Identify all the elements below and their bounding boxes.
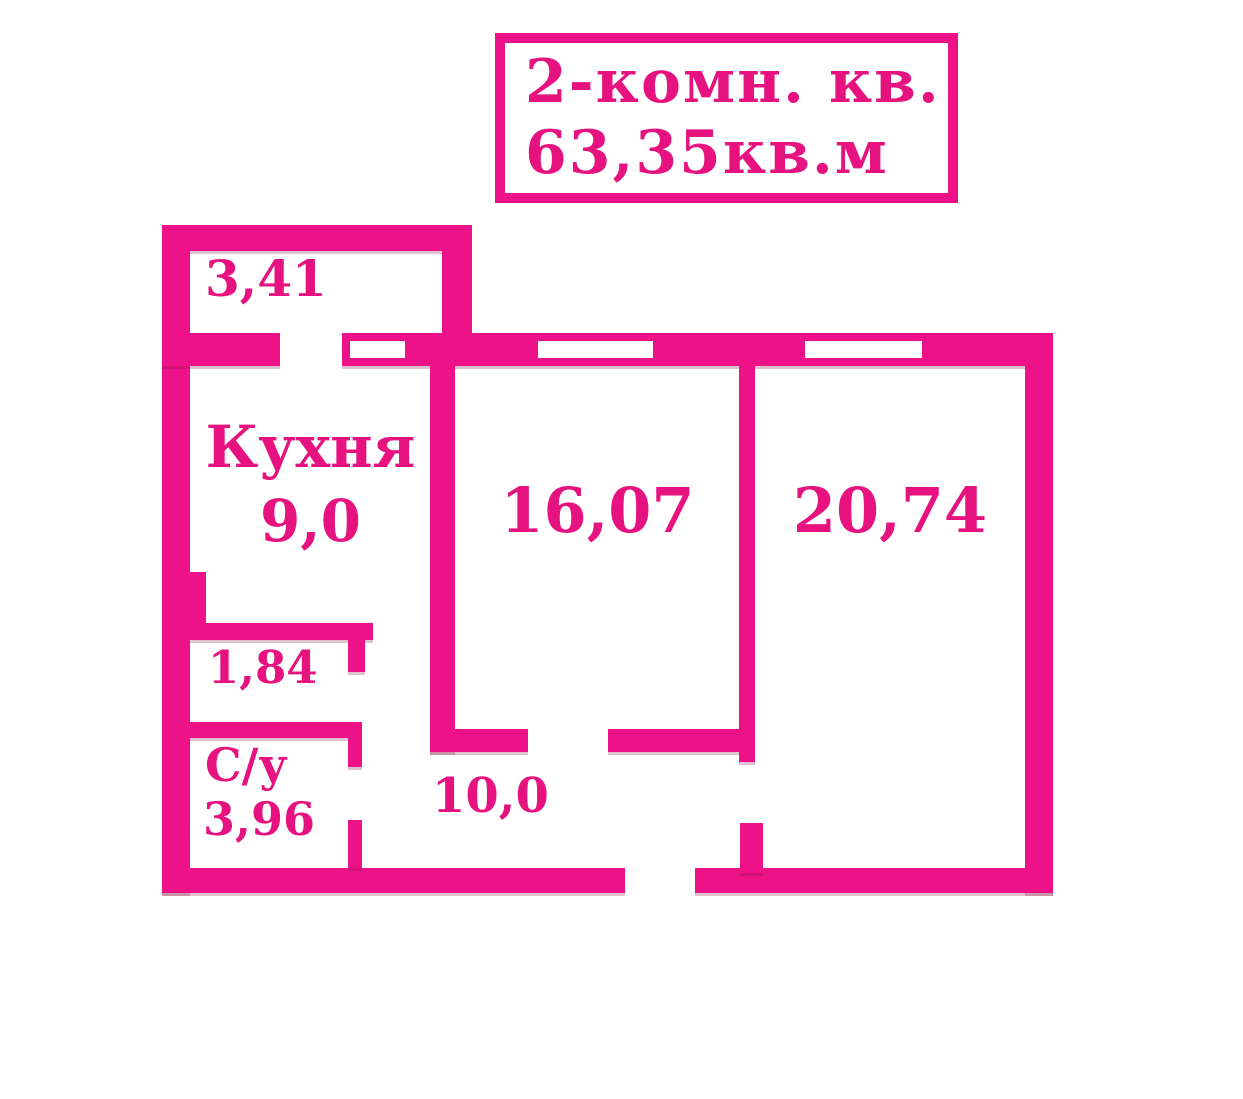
wall-outer-right [1025,335,1053,893]
wall-divider-living-bedroom [739,355,755,762]
bathroom-name-label: С/у [205,742,288,788]
wall-bathroom-right-lower [348,820,362,868]
window-kitchen-balcony [350,341,405,358]
wall-divider-kitchen-living [430,355,455,752]
window-living-room [538,341,653,358]
living-room-area-label: 16,07 [455,480,740,542]
hallway-area-label: 10,0 [432,772,549,820]
wall-living-bottom-left [430,729,528,752]
bathroom-area-label: 3,96 [203,796,315,842]
wall-living-bottom-right [608,729,755,752]
wall-outer-left [162,225,190,893]
wall-bathroom-right-upper [348,722,362,767]
wall-left-pier [190,572,206,627]
title-line-1: 2-комн. кв. [525,47,948,118]
wall-bathroom-top [190,722,358,738]
window-bedroom [805,341,922,358]
bedroom-area-label: 20,74 [755,480,1025,542]
title-line-2: 63,35кв.м [525,118,948,189]
kitchen-name-label: Кухня [188,418,433,476]
wall-hallway-bedroom-stub [740,823,763,873]
balcony-area-label: 3,41 [205,254,327,304]
wall-bottom-left [162,868,625,893]
kitchen-area-label: 9,0 [188,492,433,550]
title-box: 2-комн. кв. 63,35кв.м [495,33,958,203]
floor-plan: 2-комн. кв. 63,35кв.м 3,41 Кухня 9,0 16,… [0,0,1243,1099]
wall-balcony-right [442,225,472,335]
wall-closet-door-jamb [348,640,365,672]
wall-top-left-segment [162,333,280,366]
closet-area-label: 1,84 [208,645,318,690]
wall-closet-top [190,623,373,640]
wall-balcony-top [162,225,472,251]
